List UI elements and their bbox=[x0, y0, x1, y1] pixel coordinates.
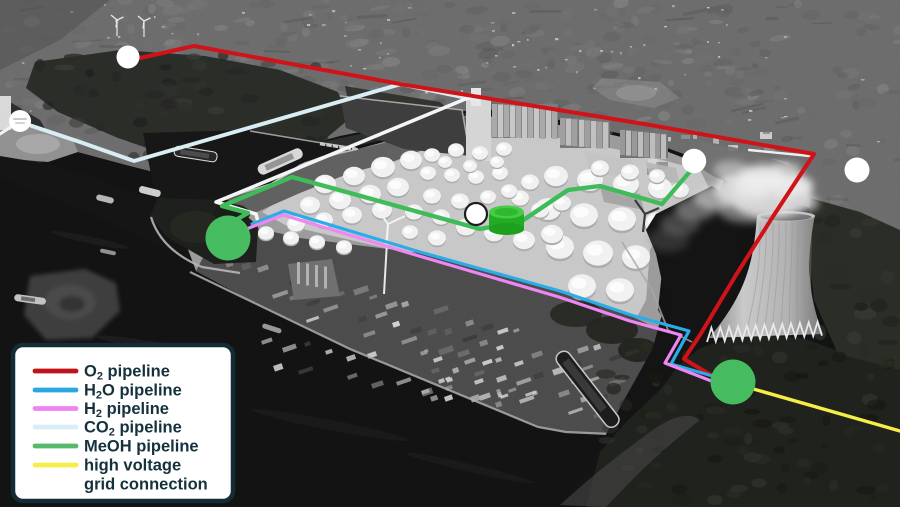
svg-text:MeOH pipeline: MeOH pipeline bbox=[84, 438, 199, 456]
svg-text:high voltage: high voltage bbox=[84, 457, 181, 475]
svg-text:grid connection: grid connection bbox=[84, 476, 208, 494]
svg-text:CO2 pipeline: CO2 pipeline bbox=[84, 419, 182, 439]
